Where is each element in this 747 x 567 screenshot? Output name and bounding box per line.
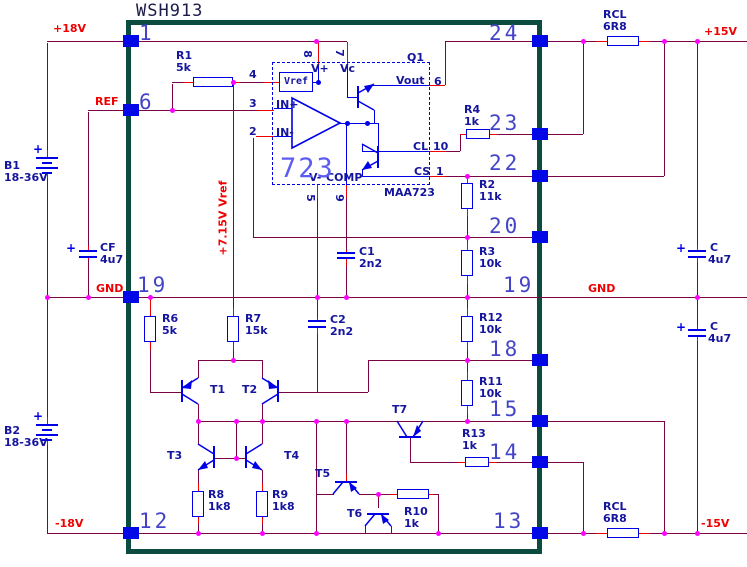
opamp-icon (290, 95, 350, 155)
battery-b1-icon (36, 167, 58, 169)
junction-dot (465, 358, 470, 363)
wire (47, 43, 48, 150)
junction-dot (695, 295, 700, 300)
wire (359, 494, 389, 495)
pin-number-22: 22 (489, 152, 520, 174)
resistor-rcl-bottom (607, 528, 639, 538)
wire (47, 533, 126, 534)
wire (445, 41, 596, 42)
t7-label: T7 (392, 404, 407, 416)
capacitor-cf-icon (79, 250, 97, 252)
lead (346, 259, 347, 266)
lead (347, 42, 348, 64)
blue-junction (365, 121, 370, 126)
wire (697, 262, 698, 297)
ic-cl-label: CL (413, 141, 428, 153)
capacitor-c-top-icon (688, 250, 706, 252)
t2-label: T2 (242, 384, 257, 396)
wire (88, 112, 89, 248)
r13-value: 1k (462, 440, 477, 452)
junction-dot (315, 295, 320, 300)
ic-pin3: 3 (249, 98, 257, 110)
resistor-r8 (192, 491, 204, 517)
ic-pin4: 4 (249, 69, 257, 81)
transistor-t3-icon (192, 440, 222, 474)
battery-b1-icon (42, 162, 52, 164)
wire (697, 299, 698, 326)
pin-13 (532, 527, 548, 539)
lead (458, 462, 465, 463)
wire (546, 533, 596, 534)
rcl-top-value: 6R8 (603, 21, 627, 33)
blue-junction (316, 80, 321, 85)
ic-vc-label: Vc (340, 63, 355, 75)
junction-dot (465, 419, 470, 424)
rcl-bottom-value: 6R8 (603, 513, 627, 525)
q1-label: Q1 (407, 52, 424, 64)
ref-label: REF (95, 96, 119, 108)
transistor-t6-icon (361, 506, 395, 536)
junction-dot (314, 39, 319, 44)
lead (467, 276, 468, 284)
junction-dot (196, 531, 201, 536)
wire (446, 176, 532, 177)
wire (317, 334, 318, 392)
battery-b2-icon (42, 429, 52, 431)
wire (150, 350, 151, 392)
pin-number-12: 12 (139, 510, 170, 532)
r3-value: 10k (479, 258, 502, 270)
pin-6 (123, 104, 139, 116)
capacitor-c1-icon (337, 257, 355, 259)
junction-dot (436, 531, 441, 536)
c-top-value: 4u7 (708, 254, 731, 266)
pin-number-24: 24 (489, 22, 520, 44)
pin-18 (532, 354, 548, 366)
r6-value: 5k (162, 325, 177, 337)
resistor-r2 (461, 183, 473, 209)
resistor-r11 (461, 380, 473, 406)
plus-sign: + (33, 144, 43, 154)
wire (198, 421, 532, 422)
transistor-t1-icon (174, 374, 204, 408)
t4-label: T4 (284, 450, 299, 462)
wire (172, 82, 184, 83)
lead (639, 41, 650, 42)
junction-dot (234, 419, 239, 424)
pin-number-19-left: 19 (137, 274, 168, 296)
wire (240, 82, 264, 83)
ic-pin10: 10 (433, 141, 448, 153)
pin-1 (123, 35, 139, 47)
capacitor-c-bottom-icon (688, 335, 706, 337)
transistor-t2-icon (256, 374, 286, 408)
r1-value: 5k (176, 62, 191, 74)
wire (546, 176, 664, 177)
cf-value: 4u7 (100, 254, 123, 266)
junction-dot (314, 531, 319, 536)
wire (172, 84, 173, 110)
lead (467, 406, 468, 414)
junction-dot (465, 174, 470, 179)
lead (389, 494, 397, 495)
wire (546, 462, 583, 463)
b2-value: 18-36V (4, 437, 48, 449)
lead (467, 342, 468, 350)
junction-dot (344, 295, 349, 300)
wire (47, 41, 126, 42)
resistor-r13 (465, 457, 489, 467)
junction-dot (260, 419, 265, 424)
wire (253, 138, 254, 237)
pin-23 (532, 128, 548, 140)
vref-rail-label: +7.15V Vref (217, 146, 230, 256)
capacitor-cf-icon (79, 256, 97, 258)
lead (317, 185, 318, 198)
junction-dot (465, 235, 470, 240)
wire (346, 266, 347, 297)
ic-vplus-label: V+ (311, 63, 329, 75)
ic-pin8: 8 (301, 50, 313, 58)
pin-number-13: 13 (493, 510, 524, 532)
lead (233, 308, 234, 316)
pin-number-14: 14 (489, 441, 520, 463)
wire (438, 494, 439, 533)
wire (583, 462, 584, 533)
junction-dot (234, 456, 239, 461)
ic-pin5: 5 (304, 194, 316, 202)
resistor-r10 (397, 489, 429, 499)
plus-sign: + (66, 243, 76, 253)
pin-22 (532, 170, 548, 182)
plus-sign: + (676, 243, 686, 253)
junction-dot (170, 108, 175, 113)
battery-b2-icon (36, 424, 58, 426)
wire (317, 198, 318, 295)
plus-sign: + (676, 322, 686, 332)
ic-pin1: 1 (436, 166, 444, 178)
junction-dot (662, 531, 667, 536)
ic-cs-label: CS (414, 166, 430, 178)
plus-sign: + (33, 411, 43, 421)
lead (318, 42, 319, 64)
resistor-r7 (227, 316, 239, 342)
ic-pin9: 9 (333, 194, 345, 202)
ic-part-number: MAA723 (384, 187, 435, 199)
lead (596, 533, 607, 534)
ic-vref-block: Vref (279, 72, 313, 92)
wire (198, 360, 262, 361)
wire (236, 421, 237, 458)
n15v-label: -15V (701, 518, 729, 530)
r9-value: 1k8 (272, 501, 295, 513)
junction-dot (581, 39, 586, 44)
wire (278, 392, 368, 393)
resistor-r9 (256, 491, 268, 517)
wire (233, 84, 234, 314)
transistor-q1-icon (350, 80, 380, 114)
lead (596, 41, 607, 42)
lead (150, 342, 151, 350)
pin-20 (532, 231, 548, 243)
lead (184, 82, 193, 83)
lead (317, 328, 318, 334)
wire (47, 176, 48, 295)
r2-value: 11k (479, 191, 502, 203)
capacitor-c-top-icon (688, 256, 706, 258)
ic-inn-label: IN- (276, 127, 294, 139)
ic-pin6: 6 (434, 76, 442, 88)
wire (467, 362, 468, 372)
ic-723-label: 723 (280, 155, 335, 182)
junction-dot (231, 358, 236, 363)
pin-24 (532, 35, 548, 47)
p18v-label: +18V (53, 23, 86, 35)
wire (317, 299, 318, 318)
ic-pin2: 2 (249, 126, 257, 138)
wire (460, 134, 461, 151)
c-bottom-value: 4u7 (708, 333, 731, 345)
wire (346, 421, 347, 475)
resistor-r12 (461, 316, 473, 342)
gnd-right-label: GND (588, 283, 615, 295)
wire (47, 443, 48, 533)
pin-number-1: 1 (139, 22, 155, 44)
wire (410, 458, 411, 462)
wire (445, 41, 446, 85)
pin-15 (532, 415, 548, 427)
gnd-left-label: GND (96, 283, 123, 295)
wire (546, 421, 664, 422)
lead (467, 242, 468, 250)
capacitor-c2-icon (308, 320, 326, 322)
pin-14 (532, 456, 548, 468)
capacitor-c-bottom-icon (688, 329, 706, 331)
lead (47, 150, 48, 157)
schematic-canvas: WSH913 (0, 0, 747, 567)
lead (198, 483, 199, 491)
r7-value: 15k (245, 325, 268, 337)
junction-dot (344, 419, 349, 424)
resistor-r4 (466, 129, 490, 139)
lead (639, 533, 650, 534)
transistor-icon (356, 140, 386, 174)
wire (467, 299, 468, 308)
wire (546, 134, 583, 135)
wire (697, 43, 698, 246)
n18v-label: -18V (55, 518, 83, 530)
transistor-t7-icon (393, 415, 427, 445)
wire (664, 421, 665, 533)
pin-number-6: 6 (139, 91, 155, 113)
lead (198, 517, 199, 524)
lead (346, 185, 347, 198)
pin-number-15: 15 (489, 398, 520, 420)
t6-label: T6 (347, 508, 362, 520)
transistor-t5-icon (329, 474, 363, 504)
junction-dot (86, 295, 91, 300)
lead (467, 308, 468, 316)
junction-dot (231, 80, 236, 85)
resistor-r3 (461, 250, 473, 276)
p15v-label: +15V (704, 26, 737, 38)
r4-value: 1k (464, 116, 479, 128)
r10-value: 1k (404, 518, 419, 530)
c1-value: 2n2 (359, 258, 382, 270)
pin-12 (123, 527, 139, 539)
junction-dot (260, 531, 265, 536)
wire (410, 462, 458, 463)
lead (429, 494, 433, 495)
junction-dot (376, 492, 381, 497)
junction-dot (465, 295, 470, 300)
wire (131, 533, 540, 534)
pin-number-19-right: 19 (503, 274, 534, 296)
ic-inp-label: IN+ (276, 99, 299, 111)
junction-dot (695, 531, 700, 536)
junction-dot (45, 295, 50, 300)
junction-dot (695, 39, 700, 44)
battery-b1-icon (36, 157, 58, 159)
blue-junction (345, 121, 350, 126)
wire (583, 43, 584, 134)
r11-value: 10k (479, 388, 502, 400)
pin-number-20: 20 (489, 215, 520, 237)
wire (88, 260, 89, 297)
ic-vout-label: Vout (396, 75, 425, 87)
module-title: WSH913 (136, 1, 203, 21)
pin-number-23: 23 (489, 112, 520, 134)
resistor-rcl-top (607, 36, 639, 46)
wire (368, 360, 369, 392)
lead (262, 517, 263, 524)
t1-label: T1 (210, 384, 225, 396)
pin-number-18: 18 (489, 338, 520, 360)
lead (47, 417, 48, 424)
capacitor-c1-icon (337, 252, 355, 254)
wire (346, 198, 347, 250)
t5-label: T5 (315, 468, 330, 480)
junction-dot (581, 531, 586, 536)
r12-value: 10k (479, 324, 502, 336)
wire (697, 341, 698, 533)
capacitor-c2-icon (308, 326, 326, 328)
junction-dot (662, 39, 667, 44)
wire (47, 299, 48, 417)
lead (467, 372, 468, 380)
junction-dot (314, 419, 319, 424)
resistor-r1 (193, 77, 233, 87)
r8-value: 1k8 (208, 501, 231, 513)
junction-dot (196, 419, 201, 424)
b1-value: 18-36V (4, 172, 48, 184)
lead (233, 342, 234, 350)
lead (150, 299, 151, 316)
transistor-t4-icon (238, 440, 268, 474)
ic-pin7: 7 (333, 49, 345, 57)
lead (467, 209, 468, 216)
lead (262, 483, 263, 491)
wire (664, 43, 665, 176)
resistor-r6 (144, 316, 156, 342)
t3-label: T3 (167, 450, 182, 462)
c2-value: 2n2 (330, 326, 353, 338)
